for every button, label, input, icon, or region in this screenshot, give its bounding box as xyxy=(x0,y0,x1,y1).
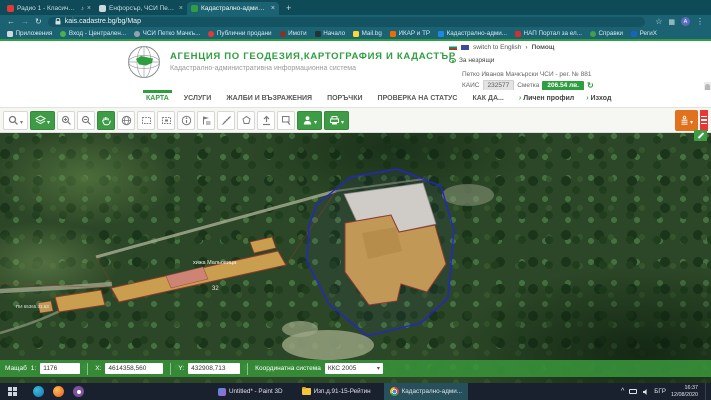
x-coordinate-input[interactable] xyxy=(105,363,163,374)
tab-services[interactable]: УСЛУГИ xyxy=(184,95,212,102)
screen: Радио 1 - Класическите... × Енфорсър, ЧС… xyxy=(0,0,711,400)
task-paint3d[interactable]: Untitled* - Paint 3D xyxy=(212,383,289,400)
bulgarian-flag-icon xyxy=(449,45,457,50)
new-tab-button[interactable]: + xyxy=(286,3,291,13)
back-icon[interactable]: ← xyxy=(7,18,15,26)
map-label-hut: хижа Мальовица xyxy=(193,260,237,266)
help-link[interactable]: Помощ xyxy=(532,44,555,51)
chevron-down-icon xyxy=(314,111,317,129)
chrome-icon xyxy=(390,387,399,396)
map-canvas[interactable]: хижа Мальовица 32 ПИ 65365.31.53 xyxy=(0,133,711,383)
x-label: X: xyxy=(95,365,101,372)
browser-tab-bar: Радио 1 - Класическите... × Енфорсър, ЧС… xyxy=(0,0,711,15)
chevron-right-icon xyxy=(586,95,588,102)
site-icon xyxy=(390,31,396,37)
bookmark-item[interactable]: Mail.bg xyxy=(353,30,382,37)
map-toolbar xyxy=(0,108,711,133)
bookmark-item[interactable]: Кадастрално-адми... xyxy=(438,30,507,37)
building-cluster[interactable] xyxy=(55,290,105,312)
site-icon xyxy=(438,31,444,37)
url-text: kais.cadastre.bg/bg/Map xyxy=(65,18,141,25)
edge-icon[interactable] xyxy=(33,386,44,397)
bookmark-item[interactable]: ЧСИ Петко Мачкъ... xyxy=(134,30,200,37)
language-indicator[interactable]: БГР xyxy=(654,388,666,395)
balance-badge: 206.54 лв. xyxy=(542,81,584,91)
windows-taskbar: Untitled* - Paint 3D Изп.д.91-15-Рейтин … xyxy=(0,383,711,400)
zoom-in-button[interactable] xyxy=(57,111,75,130)
clearing xyxy=(442,184,494,206)
bookmark-item[interactable]: Имоти xyxy=(280,30,307,37)
site-icon xyxy=(208,31,214,37)
logout-link[interactable]: Изход xyxy=(586,95,611,102)
agency-title: АГЕНЦИЯ ПО ГЕОДЕЗИЯ,КАРТОГРАФИЯ И КАДАСТ… xyxy=(170,51,456,62)
bookmark-star-icon[interactable] xyxy=(655,17,662,26)
folder-icon xyxy=(302,388,311,395)
tab-how-to[interactable]: КАК ДА... xyxy=(472,95,503,102)
y-label: Y: xyxy=(178,365,184,372)
radio-favicon xyxy=(7,5,14,12)
nav-right: Личен профил Изход xyxy=(519,95,711,102)
zoom-extent-button[interactable] xyxy=(137,111,155,130)
tray-time: 16:37 xyxy=(671,385,698,392)
road xyxy=(96,191,336,257)
chevron-right-icon xyxy=(525,44,527,51)
crs-value: ККС 2005 xyxy=(328,365,356,372)
overview-globe-button[interactable] xyxy=(117,111,135,130)
paint3d-icon xyxy=(218,388,226,396)
start-button[interactable] xyxy=(0,383,24,400)
task-chrome-active[interactable]: Кадастрално-адми... xyxy=(384,383,468,400)
apps-grid-icon xyxy=(7,31,13,37)
previous-extent-button[interactable] xyxy=(157,111,175,130)
tab-close-icon[interactable]: × xyxy=(179,5,183,12)
task-folder[interactable]: Изп.д.91-15-Рейтин xyxy=(296,383,377,400)
accessibility-link[interactable]: За незрящи xyxy=(459,57,494,64)
site-icon xyxy=(590,31,596,37)
browser-menu-icon[interactable] xyxy=(696,17,704,26)
measure-distance-button[interactable] xyxy=(217,111,235,130)
enforcer-favicon xyxy=(99,5,106,12)
map-label-parcel: ПИ 65365.31.53 xyxy=(16,304,49,309)
site-icon xyxy=(60,31,66,37)
clearing xyxy=(282,321,318,337)
url-input[interactable]: kais.cadastre.bg/bg/Map xyxy=(48,17,646,27)
extensions-icon[interactable] xyxy=(668,17,675,26)
forward-icon[interactable]: → xyxy=(21,18,29,26)
switch-language-link[interactable]: switch to English xyxy=(473,44,521,51)
map-label-building-no: 32 xyxy=(212,286,219,292)
lock-icon xyxy=(55,18,61,25)
select-region-button[interactable] xyxy=(277,111,295,130)
bookmark-item[interactable]: Вход - Централен... xyxy=(60,30,126,37)
bookmark-item[interactable]: НАП Портал за ел... xyxy=(515,30,582,37)
path xyxy=(0,310,62,333)
chevron-down-icon xyxy=(20,111,23,129)
locate-button[interactable] xyxy=(297,111,322,130)
profile-avatar[interactable]: А xyxy=(681,17,690,26)
tab-status-check[interactable]: ПРОВЕРКА НА СТАТУС xyxy=(378,95,458,102)
toolbar-right xyxy=(675,110,708,131)
windows-logo-icon xyxy=(8,387,17,396)
tab-title: Радио 1 - Класическите... xyxy=(17,5,78,12)
site-icon xyxy=(353,31,359,37)
tab-enforcer[interactable]: Енфорсър, ЧСИ Петко Мачкъ... × xyxy=(95,2,187,15)
bookmark-item[interactable]: РегиХ xyxy=(631,30,657,37)
info-button[interactable] xyxy=(177,111,195,130)
y-coordinate-input[interactable] xyxy=(188,363,240,374)
refresh-balance-icon[interactable] xyxy=(587,81,594,90)
tab-title: Кадастрално-административн... xyxy=(201,5,268,12)
divider xyxy=(170,363,171,375)
logged-user-text: Петко Иванов Мачкърски ЧСИ - рег. № 881 xyxy=(462,71,591,78)
select-features-button[interactable] xyxy=(197,111,215,130)
clock[interactable]: 16:37 12/08/2020 xyxy=(671,385,698,399)
layers-button[interactable] xyxy=(30,111,55,130)
browser-address-bar: ← → ↻ kais.cadastre.bg/bg/Map А xyxy=(0,15,711,28)
site-icon xyxy=(515,31,521,37)
tab-title: Енфорсър, ЧСИ Петко Мачкъ... xyxy=(109,5,176,12)
chevron-down-icon xyxy=(377,365,380,372)
site-header: АГЕНЦИЯ ПО ГЕОДЕЗИЯ,КАРТОГРАФИЯ И КАДАСТ… xyxy=(0,41,711,90)
divider xyxy=(247,363,248,375)
site-icon xyxy=(280,31,286,37)
eye-icon xyxy=(449,58,456,63)
side-menu-button[interactable] xyxy=(700,110,708,131)
header-links-row: switch to English Помощ xyxy=(449,44,554,51)
chevron-down-icon xyxy=(341,111,344,129)
account-label: Сметка xyxy=(517,82,539,89)
english-flag-icon xyxy=(461,45,469,50)
bookmark-item[interactable]: Начало xyxy=(315,30,345,37)
measure-area-button[interactable] xyxy=(237,111,255,130)
system-tray: БГР 16:37 12/08/2020 xyxy=(621,383,711,400)
documents-panel-button[interactable] xyxy=(675,110,698,131)
site-icon xyxy=(631,31,637,37)
upload-button[interactable] xyxy=(257,111,275,130)
tab-close-icon[interactable]: × xyxy=(271,5,275,12)
main-nav: КАРТА УСЛУГИ ЖАЛБИ И ВЪЗРАЖЕНИЯ ПОРЪЧКИ … xyxy=(0,90,711,108)
firefox-icon[interactable] xyxy=(53,386,64,397)
tab-cadastre-active[interactable]: Кадастрално-административн... × xyxy=(187,2,279,15)
scale-label: Мащаб xyxy=(5,365,27,372)
bookmark-apps[interactable]: Приложения xyxy=(7,30,52,37)
bookmarks-bar: Приложения Вход - Централен... ЧСИ Петко… xyxy=(0,28,711,39)
network-icon[interactable] xyxy=(629,389,637,394)
site-icon xyxy=(134,31,140,37)
zoom-out-button[interactable] xyxy=(77,111,95,130)
crs-select[interactable]: ККС 2005 xyxy=(325,363,383,374)
bookmark-item[interactable]: ИКАР и ТР xyxy=(390,30,430,37)
chevron-right-icon xyxy=(519,95,521,102)
tray-date: 12/08/2020 xyxy=(671,392,698,399)
volume-icon[interactable] xyxy=(642,388,649,396)
tab-map[interactable]: КАРТА xyxy=(146,95,169,102)
cadastre-favicon xyxy=(191,5,198,12)
tab-radio[interactable]: Радио 1 - Класическите... × xyxy=(3,2,95,15)
audio-icon xyxy=(81,5,84,12)
divider xyxy=(87,363,88,375)
map-status-bar: Мащаб 1: X: Y: Координатна система ККС 2… xyxy=(0,360,711,377)
scale-prefix: 1: xyxy=(31,365,36,372)
agency-subtitle: Кадастрално-административна информационн… xyxy=(170,65,356,72)
pan-button[interactable] xyxy=(97,111,115,130)
search-button[interactable] xyxy=(3,111,28,130)
show-desktop-button[interactable] xyxy=(705,383,707,400)
viber-icon[interactable] xyxy=(73,386,84,397)
tab-close-icon[interactable]: × xyxy=(87,5,91,12)
selected-parcel-outline[interactable] xyxy=(307,169,454,336)
profile-link[interactable]: Личен профил xyxy=(519,95,574,102)
scale-input[interactable] xyxy=(40,363,80,374)
reload-icon[interactable]: ↻ xyxy=(35,18,42,26)
pencil-icon xyxy=(697,132,703,138)
bookmark-item[interactable]: Публични продани xyxy=(208,30,271,37)
edit-tool-button[interactable] xyxy=(694,130,707,141)
tab-complaints[interactable]: ЖАЛБИ И ВЪЗРАЖЕНИЯ xyxy=(226,95,312,102)
tab-orders[interactable]: ПОРЪЧКИ xyxy=(327,95,362,102)
site-icon xyxy=(315,31,321,37)
chevron-down-icon xyxy=(47,111,50,129)
print-button[interactable] xyxy=(324,111,349,130)
building-annex[interactable] xyxy=(250,237,276,253)
hidden-icons-caret[interactable] xyxy=(621,388,624,395)
accessibility-row: За незрящи xyxy=(449,57,494,64)
kais-label: КАИС xyxy=(462,82,480,89)
chevron-down-icon xyxy=(690,111,693,129)
bookmark-item[interactable]: Справки xyxy=(590,30,623,37)
crs-label: Координатна система xyxy=(255,365,321,372)
agency-logo xyxy=(127,45,161,79)
